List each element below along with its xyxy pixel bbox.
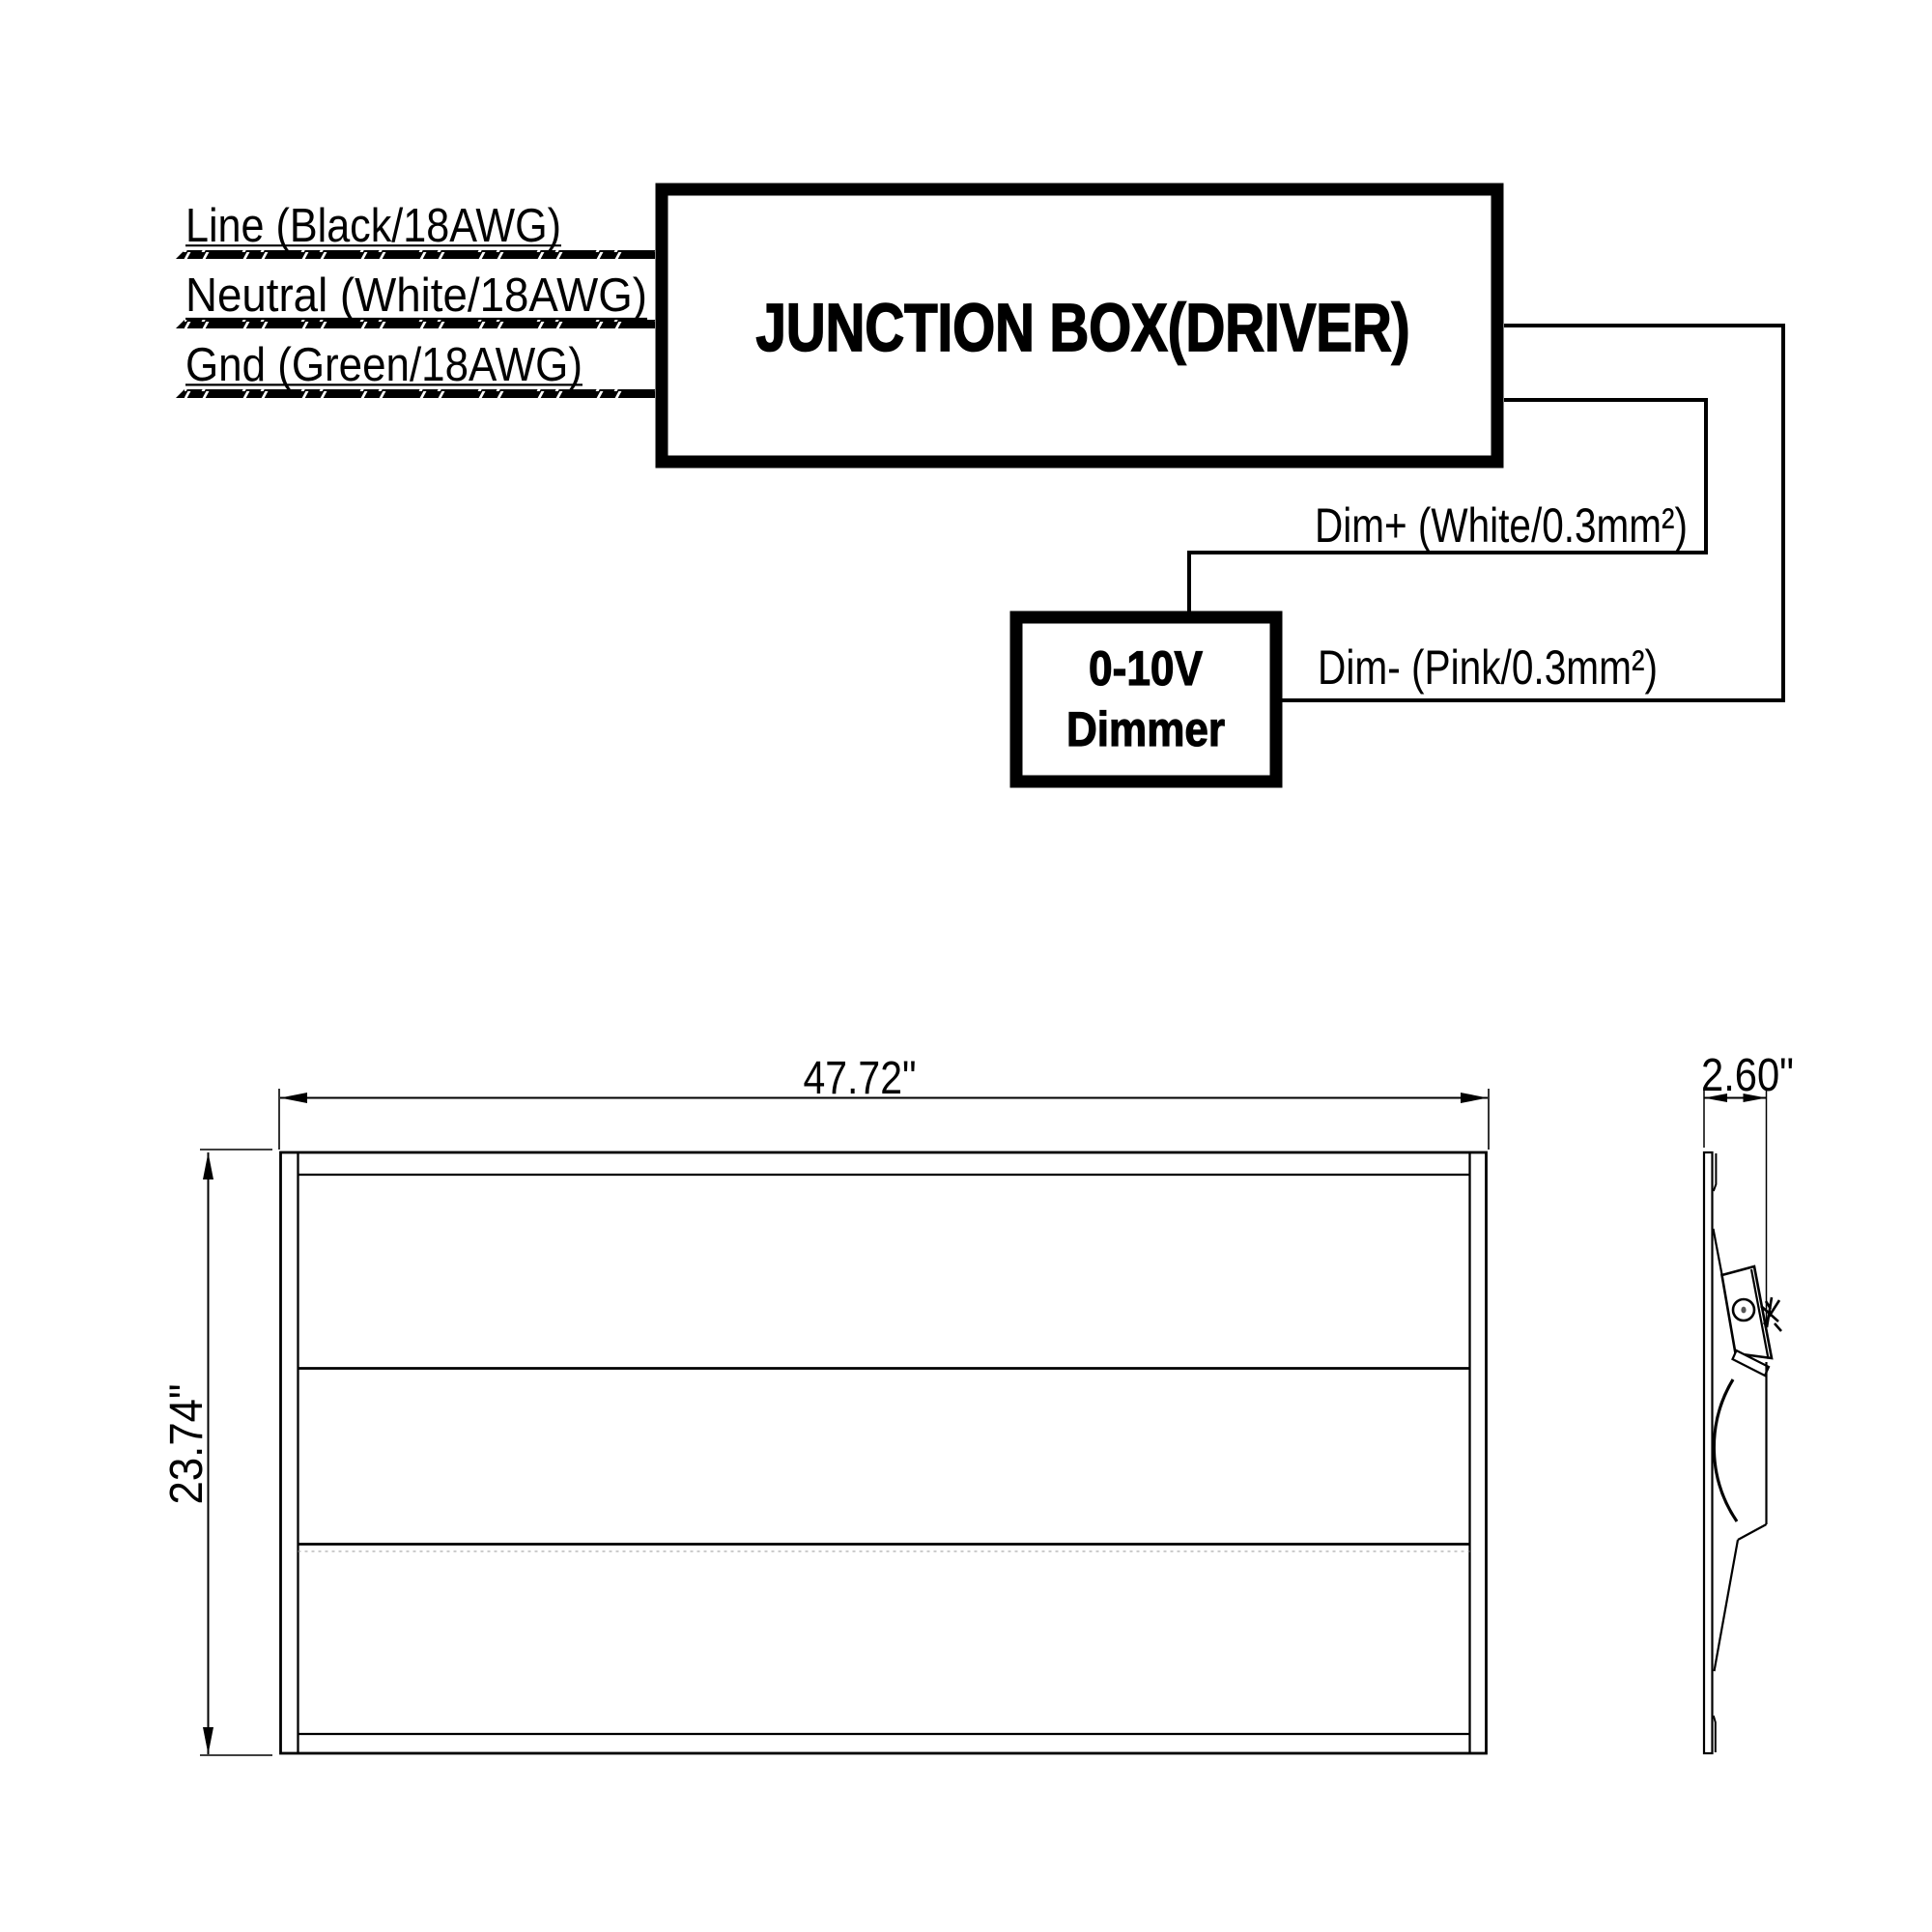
svg-text:Dim- (Pink/0.3mm²): Dim- (Pink/0.3mm²) [1318, 640, 1658, 695]
svg-text:Neutral (White/18AWG): Neutral (White/18AWG) [185, 270, 647, 322]
svg-text:2.60": 2.60" [1701, 1050, 1794, 1101]
svg-text:Line (Black/18AWG): Line (Black/18AWG) [185, 200, 561, 252]
svg-text:23.74": 23.74" [161, 1384, 213, 1505]
svg-text:JUNCTION BOX(DRIVER): JUNCTION BOX(DRIVER) [756, 290, 1410, 365]
svg-text:0-10V: 0-10V [1089, 641, 1204, 696]
svg-text:Dim+ (White/0.3mm²): Dim+ (White/0.3mm²) [1315, 498, 1688, 553]
svg-text:47.72": 47.72" [804, 1053, 917, 1104]
svg-text:Gnd (Green/18AWG): Gnd (Green/18AWG) [185, 339, 582, 391]
svg-text:Dimmer: Dimmer [1066, 702, 1225, 756]
